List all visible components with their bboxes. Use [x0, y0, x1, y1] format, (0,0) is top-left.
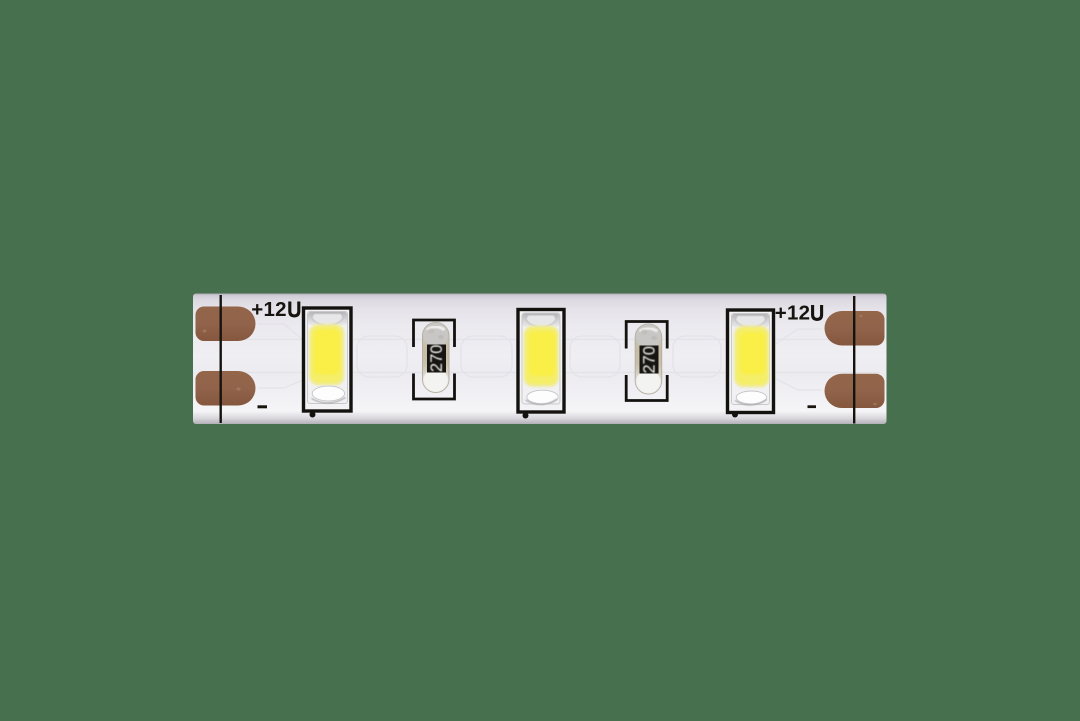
svg-text:270: 270: [428, 345, 446, 373]
svg-text:+12: +12: [251, 298, 286, 321]
svg-text:+12: +12: [775, 302, 810, 325]
svg-text:270: 270: [640, 346, 658, 374]
